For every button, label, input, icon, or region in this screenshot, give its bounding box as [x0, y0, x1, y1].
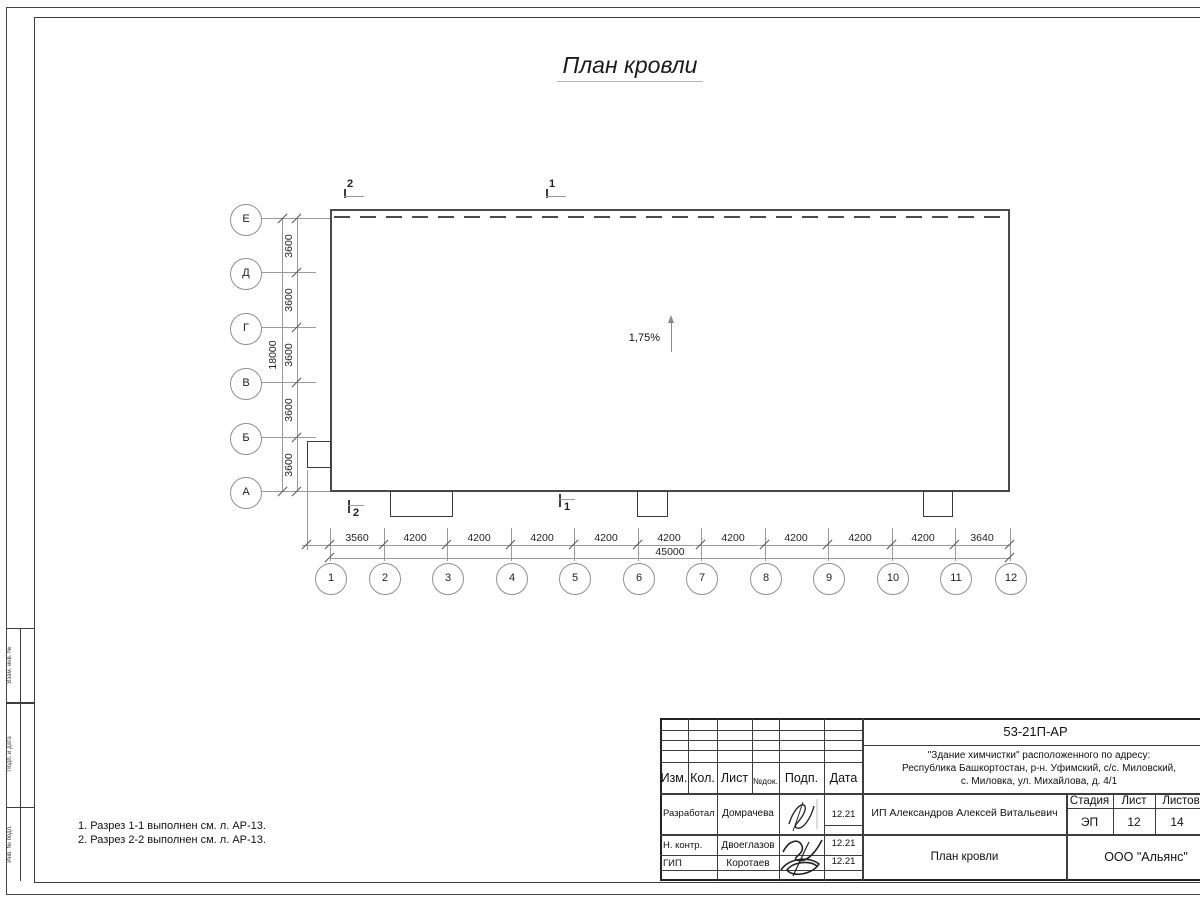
stamp-line — [660, 750, 863, 751]
dim-line-3600 — [297, 219, 298, 492]
stamp-date-developer: 12.21 — [824, 809, 863, 820]
section-1-bottom-label: 1 — [564, 501, 570, 513]
axis-circle-row: Г — [230, 313, 262, 345]
strip-label-vzam: Взам. инв. № — [7, 625, 19, 705]
stamp-drawing-title: План кровли — [863, 851, 1066, 863]
axis-circle-col: 12 — [995, 563, 1027, 595]
axis-ext-line — [261, 272, 316, 273]
bottom-porch-3 — [923, 491, 953, 517]
stamp-sheet-header: Лист — [1113, 795, 1155, 807]
axis-circle-row: В — [230, 368, 262, 400]
section-2-bottom-line — [348, 505, 364, 506]
roof-outline — [330, 209, 1010, 492]
dim-label: 4200 — [708, 532, 758, 544]
stamp-address-2: Республика Башкортостан, р-н. Уфимский, … — [863, 763, 1200, 774]
dim-label: 4200 — [517, 532, 567, 544]
axis-circle-row: Д — [230, 258, 262, 290]
stamp-address-3: с. Миловка, ул. Михайлова, д. 4/1 — [863, 776, 1200, 787]
stamp-name-developer: Домрачева — [717, 808, 779, 819]
dim-label: 4200 — [771, 532, 821, 544]
stamp-col-podp: Подп. — [779, 771, 824, 785]
bottom-porch-2 — [637, 491, 668, 517]
axis-circle-col: 11 — [940, 563, 972, 595]
dim-label: 4200 — [898, 532, 948, 544]
stamp-line — [660, 834, 1200, 836]
dim-label-3600: 3600 — [283, 335, 295, 375]
slope-label: 1,75% — [600, 332, 660, 344]
dim-label: 4200 — [581, 532, 631, 544]
signature-developer — [781, 796, 823, 833]
dim-label-3600: 3600 — [283, 390, 295, 430]
axis-circle-col: 9 — [813, 563, 845, 595]
axis-ext-line — [261, 437, 316, 438]
stamp-role-ncontrol: Н. контр. — [663, 840, 717, 851]
stamp-date-ncontrol: 12.21 — [824, 838, 863, 849]
stamp-line — [660, 740, 863, 741]
axis-ext-line — [307, 470, 308, 550]
section-2-bottom-label: 2 — [353, 507, 359, 519]
stamp-line — [863, 745, 1200, 746]
slope-arrow-icon — [671, 322, 672, 352]
drawing-sheet: Взам. инв. № Подп. и дата Инв. № подл. П… — [0, 0, 1200, 900]
stamp-line — [717, 718, 718, 881]
signature-gip — [779, 836, 825, 879]
axis-circle-row: Б — [230, 423, 262, 455]
dim-label-3600: 3600 — [283, 445, 295, 485]
stamp-sheet-value: 12 — [1113, 815, 1155, 829]
axis-circle-col: 10 — [877, 563, 909, 595]
stamp-sheets-value: 14 — [1155, 815, 1199, 829]
roof-dashed-wall-line — [334, 216, 1006, 218]
page-title: План кровли — [450, 52, 810, 79]
axis-circle-col: 7 — [686, 563, 718, 595]
axis-circle-col: 1 — [315, 563, 347, 595]
stamp-line — [660, 730, 863, 731]
slope-arrowhead-icon — [668, 315, 674, 323]
stamp-date-gip: 12.21 — [824, 856, 863, 867]
left-porch — [307, 441, 331, 468]
dim-label-3600: 3600 — [283, 226, 295, 266]
section-2-bottom-tick — [348, 500, 350, 513]
strip-label-inv: Инв. № подл. — [7, 804, 19, 884]
stamp-col-kol: Кол. — [688, 771, 717, 785]
stamp-doc-number: 53-21П-АР — [863, 724, 1200, 739]
stamp-line — [824, 825, 863, 826]
dim-line-total — [330, 558, 1010, 559]
stamp-name-gip: Коротаев — [717, 858, 779, 869]
stamp-line — [660, 870, 863, 871]
stamp-col-list: Лист — [717, 771, 752, 785]
axis-circle-col: 8 — [750, 563, 782, 595]
dim-label-18000: 18000 — [267, 325, 279, 385]
section-2-top-label: 2 — [347, 178, 353, 190]
stamp-company: ООО "Альянс" — [1066, 850, 1200, 864]
stamp-role-developer: Разработал — [663, 808, 717, 819]
dim-label: 3560 — [332, 532, 382, 544]
axis-circle-col: 3 — [432, 563, 464, 595]
stamp-role-gip: ГИП — [663, 858, 717, 869]
section-1-top-line — [546, 196, 566, 197]
bottom-porch-1 — [390, 491, 453, 517]
axis-circle-col: 6 — [623, 563, 655, 595]
dim-label: 4200 — [390, 532, 440, 544]
stamp-sheets-header: Листов — [1155, 795, 1200, 807]
section-1-bottom-tick — [559, 494, 561, 507]
stamp-client: ИП Александров Алексей Витальевич — [863, 807, 1066, 819]
section-1-top-label: 1 — [549, 178, 555, 190]
section-1-bottom-line — [559, 499, 575, 500]
stamp-col-izm: Изм. — [660, 771, 688, 785]
stamp-line — [660, 762, 863, 763]
stamp-col-ndok: №док. — [752, 776, 779, 786]
dim-label-total: 45000 — [645, 546, 695, 558]
axis-circle-col: 4 — [496, 563, 528, 595]
dim-label: 4200 — [454, 532, 504, 544]
axis-circle-row: Е — [230, 204, 262, 236]
axis-circle-col: 5 — [559, 563, 591, 595]
dim-label: 4200 — [644, 532, 694, 544]
stamp-line — [1066, 808, 1200, 809]
strip-divider — [20, 628, 21, 881]
axis-circle-row: А — [230, 477, 262, 509]
axis-circle-col: 2 — [369, 563, 401, 595]
stamp-stage-value: ЭП — [1066, 815, 1113, 829]
stamp-name-ncontrol: Двоеглазов — [717, 840, 779, 851]
strip-label-podp: Подп. и дата — [7, 714, 19, 794]
stamp-stage-header: Стадия — [1066, 795, 1113, 807]
stamp-address-1: "Здание химчистки" расположенного по адр… — [863, 750, 1200, 761]
section-2-top-line — [344, 196, 364, 197]
dim-label: 4200 — [835, 532, 885, 544]
dim-label-3600: 3600 — [283, 280, 295, 320]
stamp-col-data: Дата — [824, 771, 863, 785]
note-2: 2. Разрез 2-2 выполнен см. л. АР-13. — [78, 834, 266, 846]
note-1: 1. Разрез 1-1 выполнен см. л. АР-13. — [78, 820, 266, 832]
dim-label: 3640 — [957, 532, 1007, 544]
